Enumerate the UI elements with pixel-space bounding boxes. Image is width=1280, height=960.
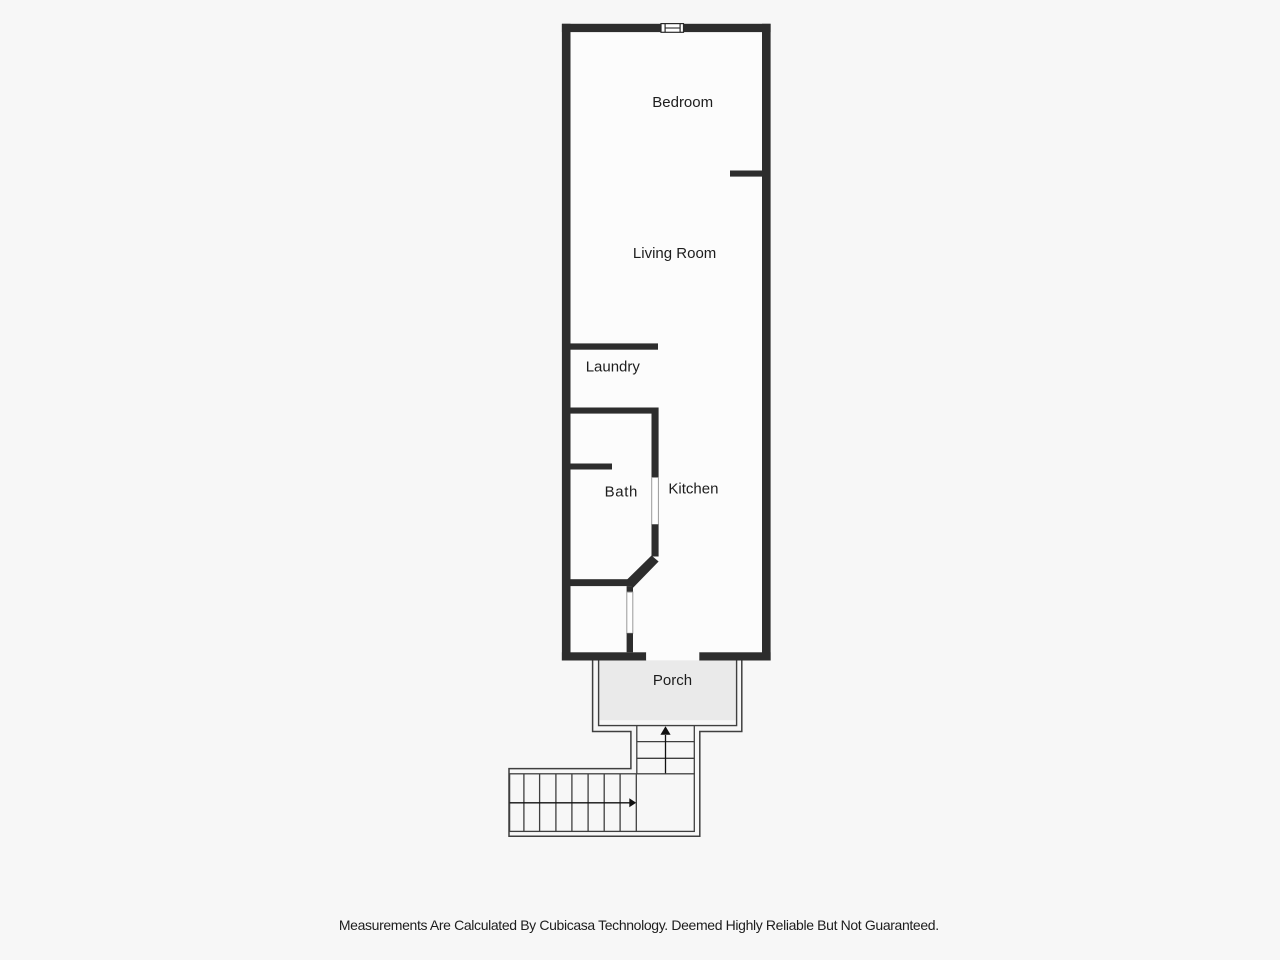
svg-text:Bedroom: Bedroom: [652, 94, 713, 111]
svg-text:Bath: Bath: [605, 483, 638, 500]
svg-text:Measurements Are Calculated By: Measurements Are Calculated By Cubicasa …: [339, 917, 939, 933]
svg-text:Porch: Porch: [653, 672, 692, 689]
svg-text:Kitchen: Kitchen: [668, 480, 718, 497]
svg-text:Living Room: Living Room: [633, 245, 716, 262]
svg-text:Laundry: Laundry: [586, 358, 641, 375]
